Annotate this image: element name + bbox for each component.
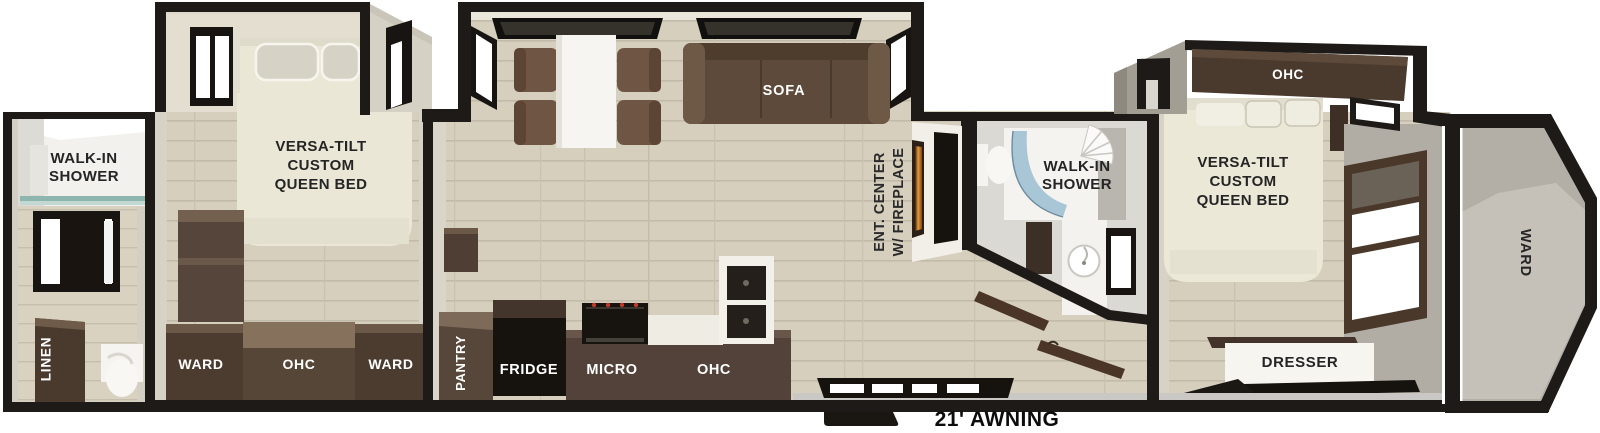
svg-text:CUSTOM: CUSTOM — [1209, 173, 1276, 190]
svg-text:OHC: OHC — [283, 356, 316, 372]
svg-text:QUEEN BED: QUEEN BED — [275, 176, 368, 193]
svg-text:VERSA-TILT: VERSA-TILT — [275, 138, 366, 155]
svg-text:OHC: OHC — [1272, 67, 1304, 82]
svg-text:VERSA-TILT: VERSA-TILT — [1197, 154, 1288, 171]
svg-text:WARD: WARD — [368, 356, 413, 372]
svg-text:SHOWER: SHOWER — [49, 168, 119, 185]
svg-text:MICRO: MICRO — [586, 362, 637, 378]
svg-text:PANTRY: PANTRY — [453, 335, 468, 391]
svg-text:SHOWER: SHOWER — [1042, 176, 1112, 193]
svg-text:DRESSER: DRESSER — [1262, 354, 1339, 371]
svg-text:WARD: WARD — [178, 356, 223, 372]
svg-text:W/ FIREPLACE: W/ FIREPLACE — [891, 148, 907, 257]
svg-text:LINEN: LINEN — [39, 337, 54, 382]
svg-text:21' AWNING: 21' AWNING — [935, 408, 1060, 431]
svg-text:SOFA: SOFA — [763, 83, 806, 99]
svg-text:ENT. CENTER: ENT. CENTER — [872, 152, 888, 252]
svg-text:QUEEN BED: QUEEN BED — [1197, 192, 1290, 209]
svg-text:WALK-IN: WALK-IN — [1044, 158, 1111, 175]
svg-text:WALK-IN: WALK-IN — [51, 150, 118, 167]
svg-text:OHC: OHC — [697, 362, 731, 378]
svg-text:CUSTOM: CUSTOM — [287, 157, 354, 174]
svg-text:WARD: WARD — [1517, 229, 1533, 277]
svg-text:FRIDGE: FRIDGE — [500, 362, 558, 378]
